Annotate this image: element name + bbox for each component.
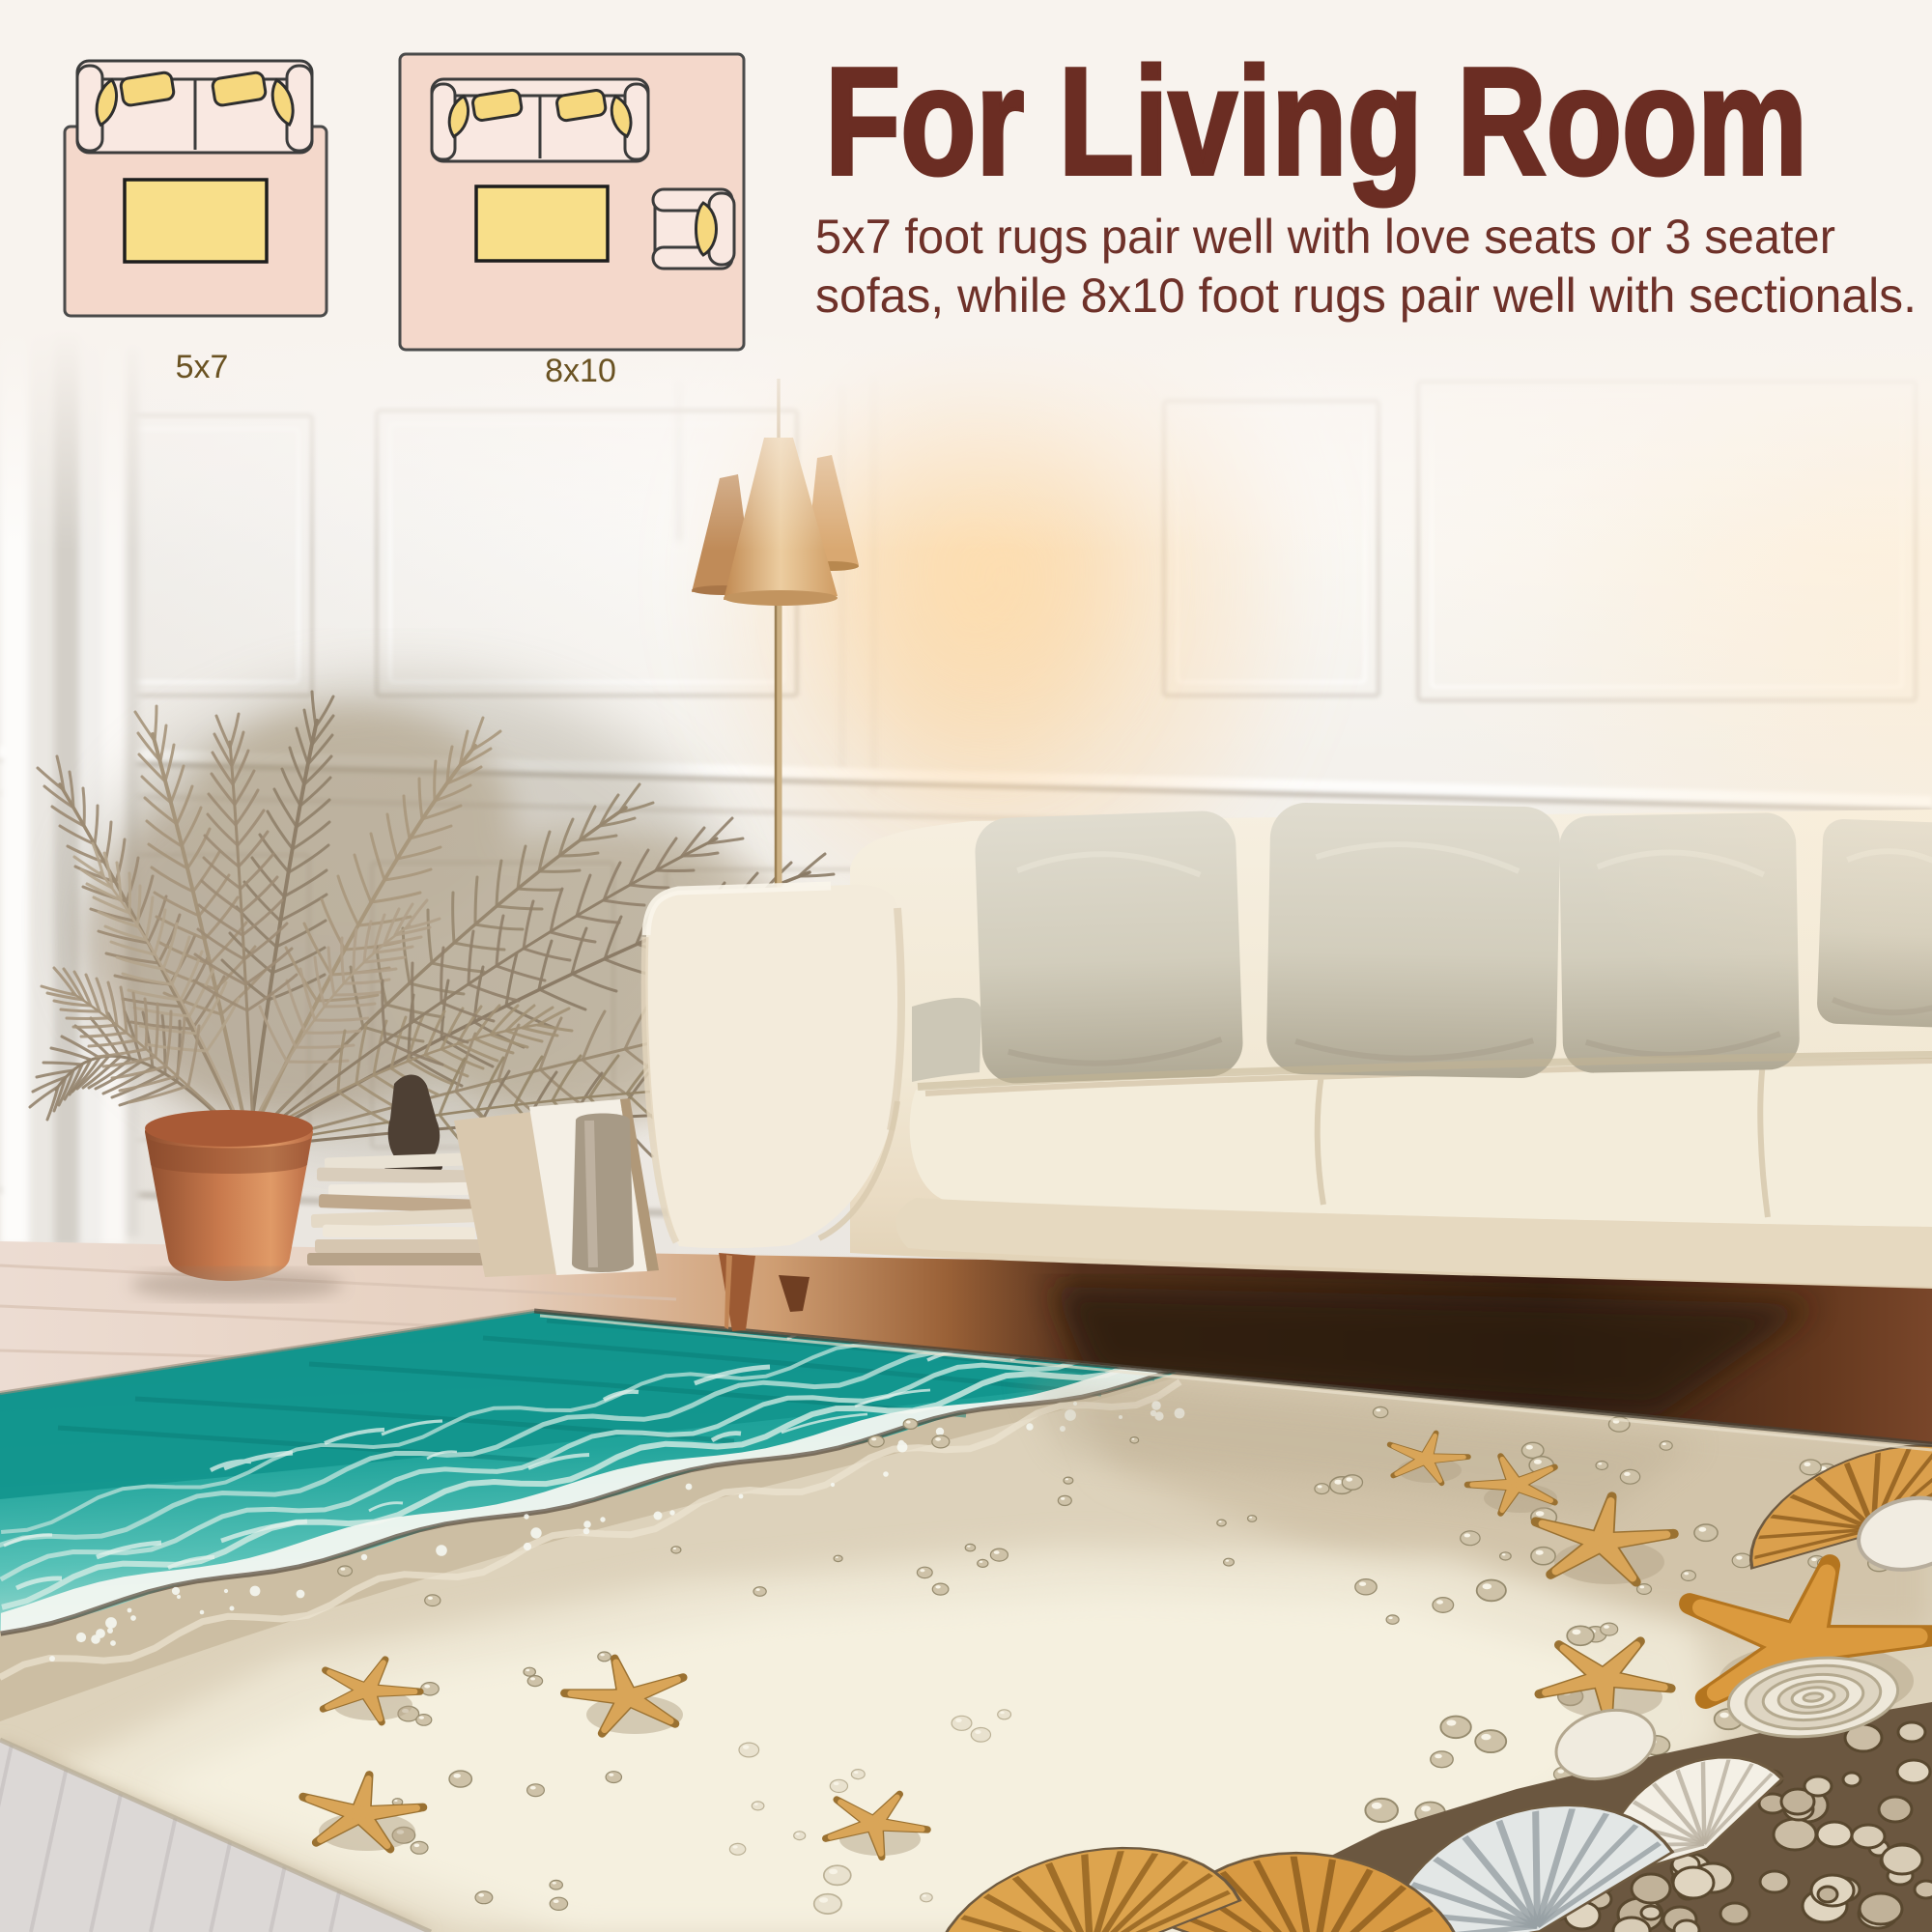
svg-text:sofas, while 8x10 foot rugs pa: sofas, while 8x10 foot rugs pair well wi… [815, 269, 1917, 323]
svg-text:For Living Room: For Living Room [825, 37, 1807, 207]
svg-text:5x7 foot rugs pair well with l: 5x7 foot rugs pair well with love seats … [815, 210, 1835, 264]
svg-text:5x7: 5x7 [176, 349, 229, 385]
svg-text:8x10: 8x10 [545, 353, 616, 389]
